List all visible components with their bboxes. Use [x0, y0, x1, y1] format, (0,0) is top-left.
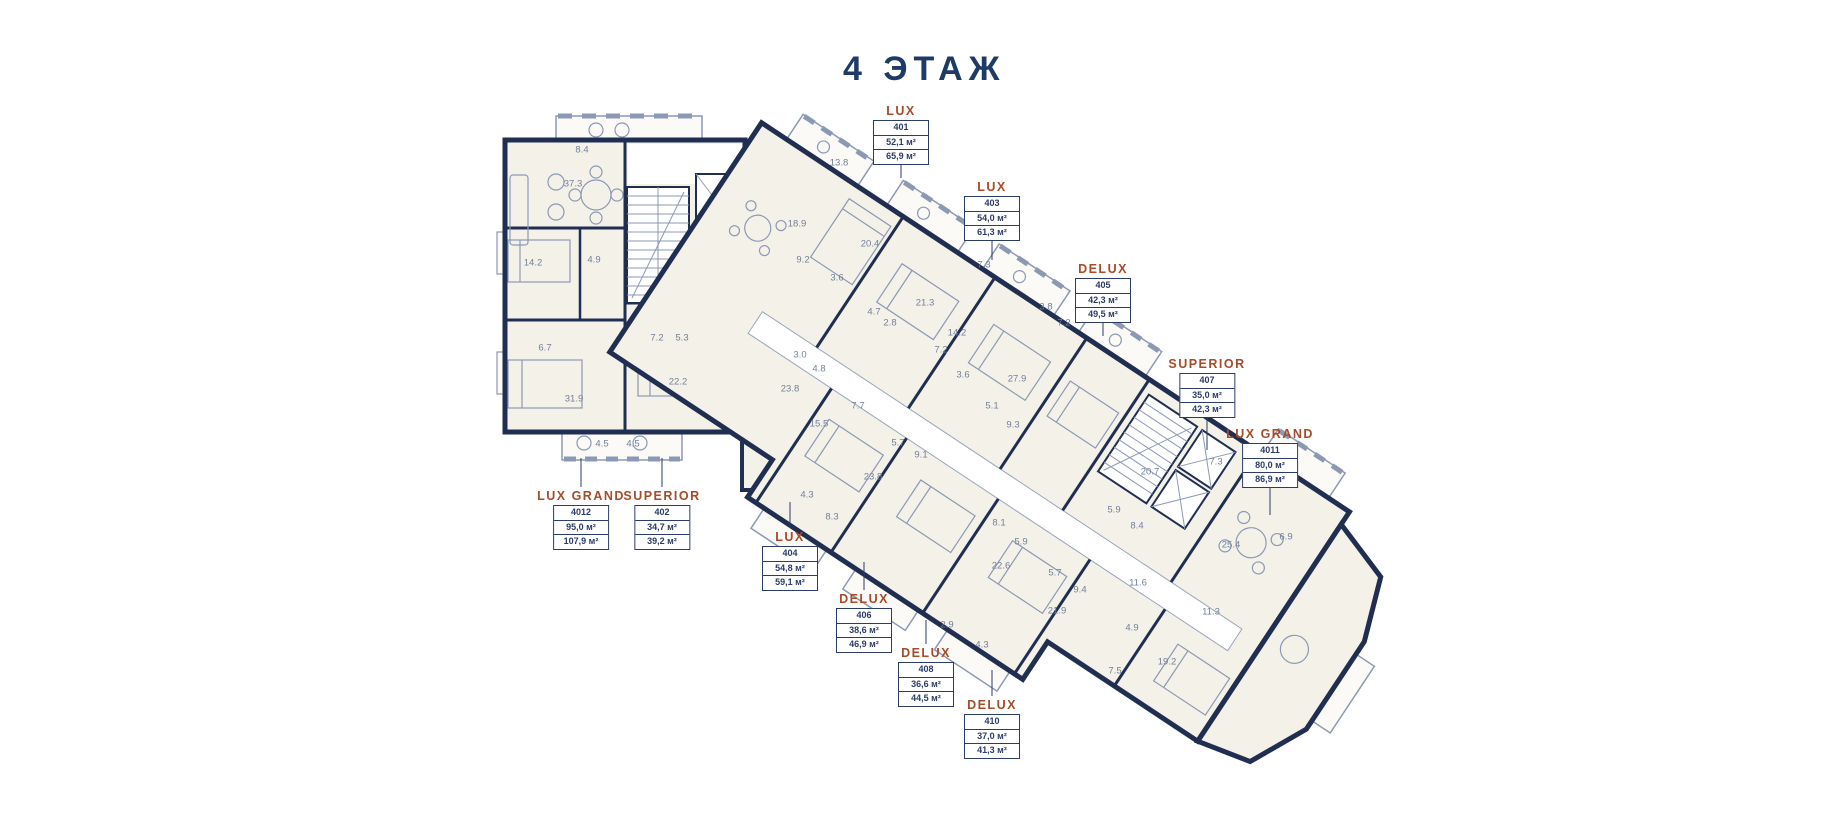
unit-area-1: 52,1 м²: [874, 136, 928, 151]
room-area: 6.7: [538, 343, 551, 354]
room-area: 19.2: [1158, 657, 1177, 668]
room-area: 14.2: [948, 328, 967, 339]
room-area: 11.6: [1129, 578, 1147, 589]
unit-callout-404[interactable]: LUX 404 54,8 м² 59,1 м²: [762, 530, 818, 591]
room-area: 23.8: [864, 472, 883, 483]
unit-number: 402: [635, 506, 689, 521]
unit-callout-406[interactable]: DELUX 406 38,6 м² 46,9 м²: [836, 592, 892, 653]
unit-area-2: 61,3 м²: [965, 226, 1019, 240]
unit-area-1: 54,0 м²: [965, 212, 1019, 227]
unit-number: 404: [763, 547, 817, 562]
room-area: 4.8: [812, 364, 825, 375]
unit-number: 4011: [1243, 444, 1297, 459]
unit-number: 403: [965, 197, 1019, 212]
unit-number: 4012: [554, 506, 608, 521]
room-area: 5.9: [1014, 537, 1027, 548]
room-area: 20.4: [861, 239, 880, 250]
room-area: 5.9: [1107, 505, 1120, 516]
room-area: 22.2: [669, 377, 688, 388]
unit-type: DELUX: [836, 592, 892, 606]
room-area: 8.4: [575, 145, 588, 156]
unit-area-2: 44,5 м²: [899, 692, 953, 706]
unit-type: SUPERIOR: [1168, 357, 1245, 371]
unit-type: LUX GRAND: [537, 489, 625, 503]
unit-area-1: 38,6 м²: [837, 624, 891, 639]
unit-area-1: 80,0 м²: [1243, 459, 1297, 474]
room-area: 9.2: [796, 255, 809, 266]
unit-area-1: 95,0 м²: [554, 521, 608, 536]
page-title: 4 ЭТАЖ: [843, 50, 1005, 89]
room-area: 23.8: [781, 384, 800, 395]
room-area: 3.8: [1039, 302, 1052, 313]
unit-area-1: 36,6 м²: [899, 678, 953, 693]
room-area: 22.6: [992, 561, 1011, 572]
room-area: 13.8: [830, 158, 849, 169]
room-area: 4.3: [800, 490, 813, 501]
room-area: 3.6: [830, 273, 843, 284]
unit-area-2: 107,9 м²: [554, 535, 608, 549]
unit-area-1: 37,0 м²: [965, 730, 1019, 745]
room-area: 5.7: [891, 438, 904, 449]
unit-type: DELUX: [1075, 262, 1131, 276]
unit-area-2: 42,3 м²: [1180, 403, 1234, 417]
unit-callout-403[interactable]: LUX 403 54,0 м² 61,3 м²: [964, 180, 1020, 241]
room-area: 21.9: [1048, 606, 1067, 617]
unit-area-2: 86,9 м²: [1243, 473, 1297, 487]
room-area: 9.1: [914, 450, 927, 461]
room-area: 4.9: [587, 255, 600, 266]
room-area: 2.8: [883, 318, 896, 329]
room-area: 15.5: [810, 419, 829, 430]
unit-callout-407[interactable]: SUPERIOR 407 35,0 м² 42,3 м²: [1168, 357, 1245, 418]
unit-number: 410: [965, 715, 1019, 730]
unit-number: 406: [837, 609, 891, 624]
room-area: 3.6: [956, 370, 969, 381]
floor-plan-canvas: 4 ЭТАЖ LUX 401 52,1 м² 65,9 м² LUX 403 5…: [0, 0, 1828, 822]
room-area: 5.1: [985, 401, 998, 412]
unit-area-1: 34,7 м²: [635, 521, 689, 536]
unit-number: 401: [874, 121, 928, 136]
unit-area-2: 41,3 м²: [965, 744, 1019, 758]
room-area: 3.0: [793, 350, 806, 361]
unit-callout-410[interactable]: DELUX 410 37,0 м² 41,3 м²: [964, 698, 1020, 759]
room-area: 4.7: [867, 307, 880, 318]
room-area: 20.7: [1141, 467, 1160, 478]
room-area: 4.5: [595, 439, 608, 450]
room-area: 7.2: [1057, 318, 1070, 329]
unit-callout-401[interactable]: LUX 401 52,1 м² 65,9 м²: [873, 104, 929, 165]
unit-area-2: 39,2 м²: [635, 535, 689, 549]
room-area: 21.3: [916, 298, 935, 309]
unit-type: SUPERIOR: [623, 489, 700, 503]
room-area: 27.9: [1008, 374, 1027, 385]
room-area: 25.4: [1222, 540, 1241, 551]
room-area: 7.5: [1108, 666, 1121, 677]
room-area: 8.1: [992, 518, 1005, 529]
room-area: 7.7: [851, 401, 864, 412]
unit-area-2: 46,9 м²: [837, 638, 891, 652]
room-area: 18.9: [788, 219, 807, 230]
unit-type: LUX: [762, 530, 818, 544]
unit-callout-4011[interactable]: LUX GRAND 4011 80,0 м² 86,9 м²: [1226, 427, 1314, 488]
unit-type: DELUX: [898, 646, 954, 660]
room-area: 11.3: [1202, 607, 1220, 618]
room-area: 5.7: [1048, 568, 1061, 579]
room-area: 7.2: [650, 333, 663, 344]
room-area: 5.3: [675, 333, 688, 344]
room-area: 8.4: [1130, 521, 1143, 532]
unit-callout-402[interactable]: SUPERIOR 402 34,7 м² 39,2 м²: [623, 489, 700, 550]
room-area: 9.4: [1073, 585, 1086, 596]
room-area: 4.3: [975, 640, 988, 651]
unit-area-2: 59,1 м²: [763, 576, 817, 590]
unit-number: 405: [1076, 279, 1130, 294]
room-area: 6.9: [1279, 532, 1292, 543]
unit-area-1: 35,0 м²: [1180, 389, 1234, 404]
unit-callout-405[interactable]: DELUX 405 42,3 м² 49,5 м²: [1075, 262, 1131, 323]
room-area: 7.3: [1209, 457, 1222, 468]
unit-area-1: 42,3 м²: [1076, 294, 1130, 309]
room-area: 9.3: [1006, 420, 1019, 431]
room-area: 2.9: [940, 620, 953, 631]
unit-type: LUX: [873, 104, 929, 118]
room-area: 7.3: [977, 260, 990, 271]
unit-number: 407: [1180, 374, 1234, 389]
unit-type: LUX GRAND: [1226, 427, 1314, 441]
unit-area-2: 65,9 м²: [874, 150, 928, 164]
room-area: 14.2: [524, 258, 543, 269]
unit-type: DELUX: [964, 698, 1020, 712]
room-area: 31.9: [565, 394, 584, 405]
room-area: 37.3: [564, 179, 583, 190]
unit-area-1: 54,8 м²: [763, 562, 817, 577]
room-area: 4.9: [1125, 623, 1138, 634]
room-area: 7.2: [934, 345, 947, 356]
unit-number: 408: [899, 663, 953, 678]
unit-callout-408[interactable]: DELUX 408 36,6 м² 44,5 м²: [898, 646, 954, 707]
unit-area-2: 49,5 м²: [1076, 308, 1130, 322]
room-area: 4.5: [626, 439, 639, 450]
unit-type: LUX: [964, 180, 1020, 194]
room-area: 8.3: [825, 512, 838, 523]
unit-callout-4012[interactable]: LUX GRAND 4012 95,0 м² 107,9 м²: [537, 489, 625, 550]
